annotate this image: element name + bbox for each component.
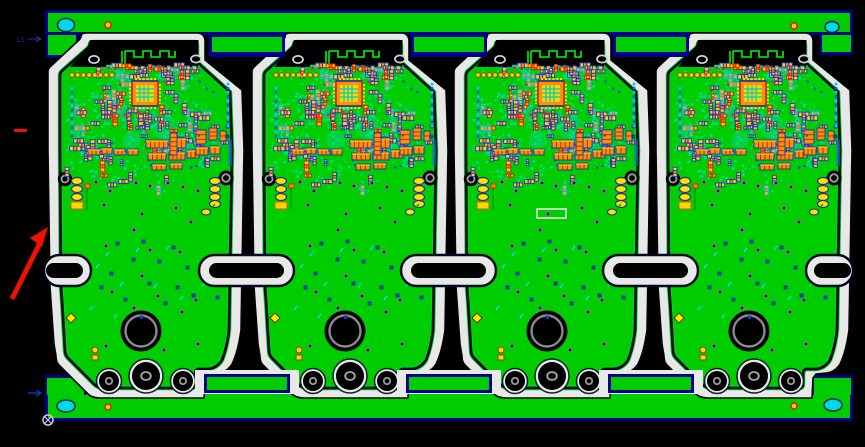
svg-text:L1: L1 bbox=[17, 37, 25, 44]
